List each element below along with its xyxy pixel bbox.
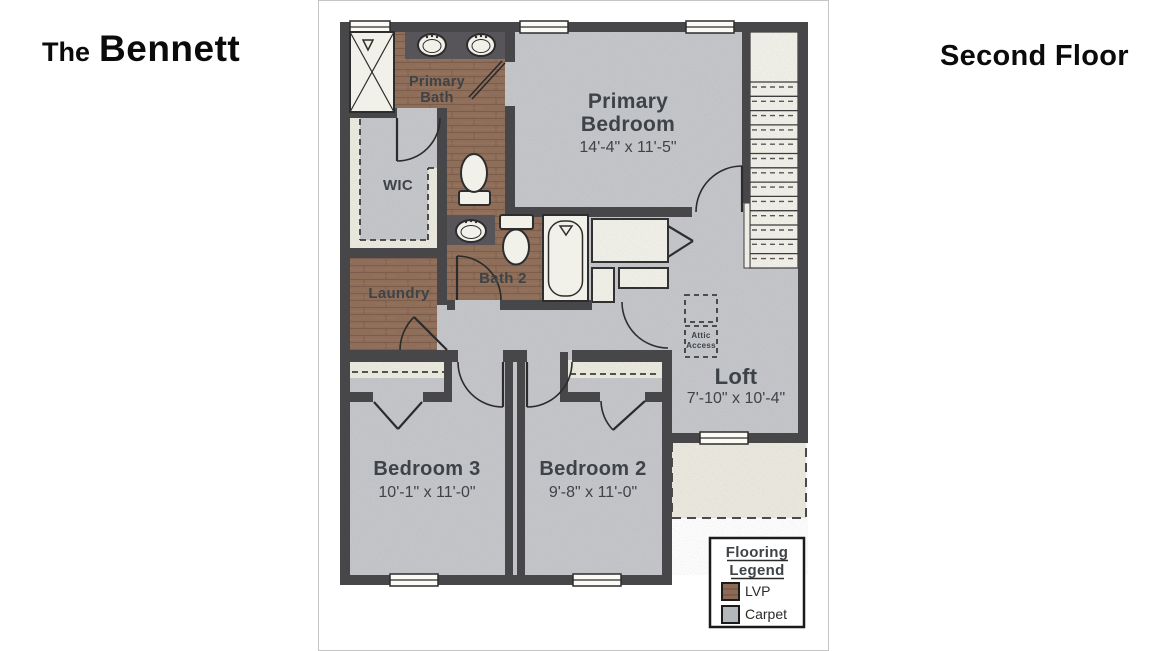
carpet-label: Carpet	[745, 606, 787, 622]
bathtub-fixture	[543, 215, 588, 301]
attic-label-line2: Access	[686, 341, 716, 350]
floor-plan-drawing: Attic Access Primary Bath Primary Bedroo…	[0, 0, 1150, 651]
bedroom3-label: Bedroom 3	[373, 458, 480, 480]
primary-bedroom-label-line2: Bedroom	[581, 113, 675, 136]
loft-dims: 7'-10" x 10'-4"	[687, 390, 785, 407]
wic-label: WIC	[383, 177, 413, 194]
shower-fixture	[350, 32, 394, 112]
primary-bath-label-line2: Bath	[420, 90, 453, 106]
toilet-fixture	[459, 154, 490, 205]
primary-bath-label-line1: Primary	[409, 74, 465, 90]
window	[390, 574, 438, 586]
bedroom2-dims: 9'-8" x 11'-0"	[549, 484, 637, 501]
legend-title-line2: Legend	[729, 562, 784, 579]
legend-title-line1: Flooring	[726, 544, 788, 561]
bath2-sink	[447, 215, 495, 245]
lvp-swatch	[722, 583, 739, 600]
primary-bedroom-label-line1: Primary	[588, 90, 668, 113]
window	[520, 21, 568, 33]
bedroom3-dims: 10'-1" x 11'-0"	[378, 484, 475, 501]
vanity-double-sink	[405, 32, 505, 59]
loft-label: Loft	[715, 364, 758, 389]
flooring-legend: Flooring Legend LVP Carpet	[710, 538, 804, 627]
attic-label-line1: Attic	[691, 331, 711, 340]
window	[686, 21, 734, 33]
bath2-label: Bath 2	[479, 270, 527, 287]
lvp-label: LVP	[745, 583, 770, 599]
window	[573, 574, 621, 586]
legend-item-carpet: Carpet	[722, 606, 787, 623]
carpet-swatch	[722, 606, 739, 623]
legend-item-lvp: LVP	[722, 583, 770, 600]
primary-bedroom-dims: 14'-4" x 11'-5"	[579, 139, 676, 156]
laundry-label: Laundry	[368, 285, 430, 302]
bedroom2-label: Bedroom 2	[539, 458, 646, 480]
floor-plan-page: The Bennett Second Floor	[0, 0, 1150, 651]
window	[700, 432, 748, 444]
